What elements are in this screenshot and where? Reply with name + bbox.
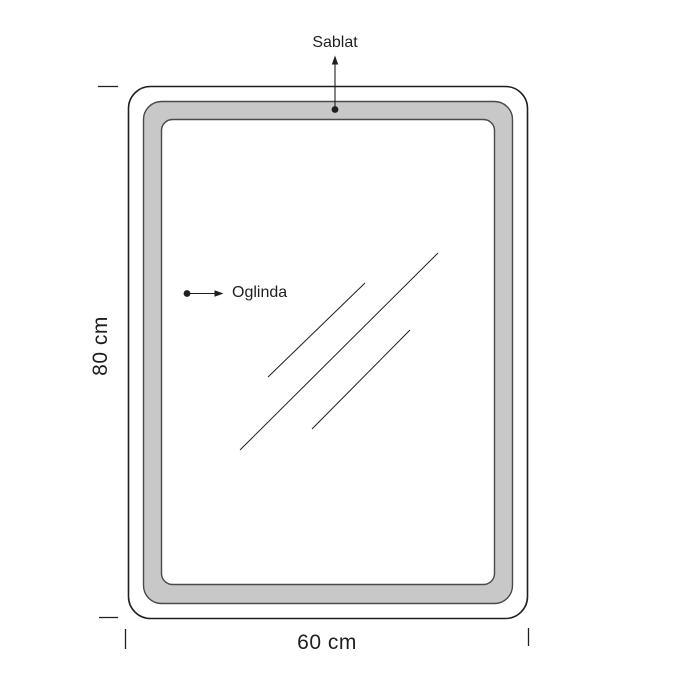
mirror-dimension-diagram: Sablat Oglinda 80 cm 60 cm <box>0 0 700 700</box>
mirror-surface <box>162 120 495 585</box>
width-dimension-label: 60 cm <box>297 631 357 655</box>
oglinda-label: Oglinda <box>232 284 287 302</box>
arrow-up-icon <box>332 56 338 65</box>
sablat-label: Sablat <box>312 34 357 52</box>
height-dimension-label: 80 cm <box>89 316 113 376</box>
sablat-anchor-dot <box>332 106 339 113</box>
